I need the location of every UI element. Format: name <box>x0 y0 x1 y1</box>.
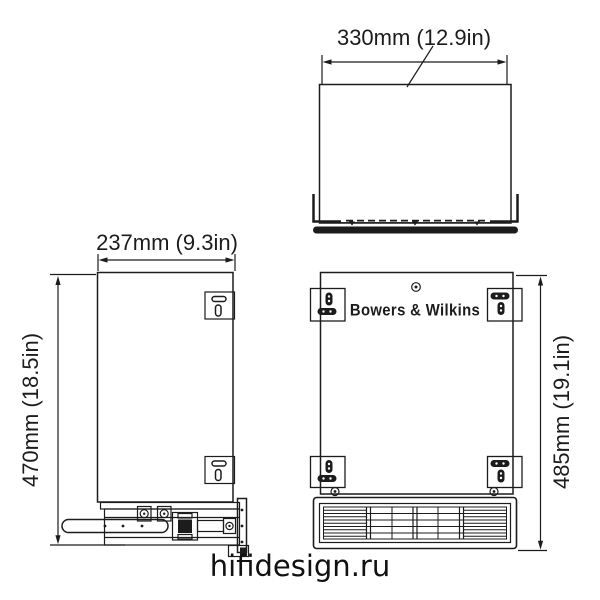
front-height-dimension <box>516 276 547 551</box>
side-bracket-bottom <box>205 457 235 484</box>
top-width-label: 330mm (12.9in) <box>337 25 491 51</box>
top-view-outline <box>320 85 512 224</box>
top-view-grille-bar <box>313 227 518 234</box>
keyhole-bracket-top-right <box>488 289 523 322</box>
side-bracket-top <box>205 292 235 319</box>
keyhole-bracket-top-left <box>311 289 346 322</box>
dimension-diagram: 330mm (12.9in) 237mm (9.3in) 470mm (18.5… <box>0 0 600 600</box>
vent-grille <box>314 498 517 549</box>
mounting-slide-mechanism <box>62 499 249 557</box>
keyhole-bracket-bottom-right <box>488 457 523 488</box>
side-view-outline <box>98 273 234 503</box>
top-view-drawing <box>313 46 518 234</box>
watermark-text: hifidesign.ru <box>210 549 390 583</box>
top-view-rail <box>341 221 490 226</box>
diagram-linework <box>0 0 600 600</box>
top-width-dimension <box>322 46 507 87</box>
brand-logo-text: Bowers & Wilkins <box>350 302 480 321</box>
side-height-dimension <box>50 275 125 546</box>
slide-rod <box>198 519 236 534</box>
top-view-hooks <box>314 194 518 222</box>
slide-carriage <box>173 513 198 541</box>
keyhole-bracket-bottom-left <box>311 457 346 488</box>
front-height-label: 485mm (19.1in) <box>549 335 575 489</box>
leader-line <box>407 46 433 87</box>
logo-screw-icon <box>412 283 421 292</box>
side-depth-dimension <box>98 254 235 271</box>
slide-arm <box>62 520 168 533</box>
side-depth-label: 237mm (9.3in) <box>96 230 238 256</box>
slide-arm-rivets <box>104 525 144 528</box>
side-height-label: 470mm (18.5in) <box>18 333 44 487</box>
side-view-drawing <box>50 254 249 557</box>
